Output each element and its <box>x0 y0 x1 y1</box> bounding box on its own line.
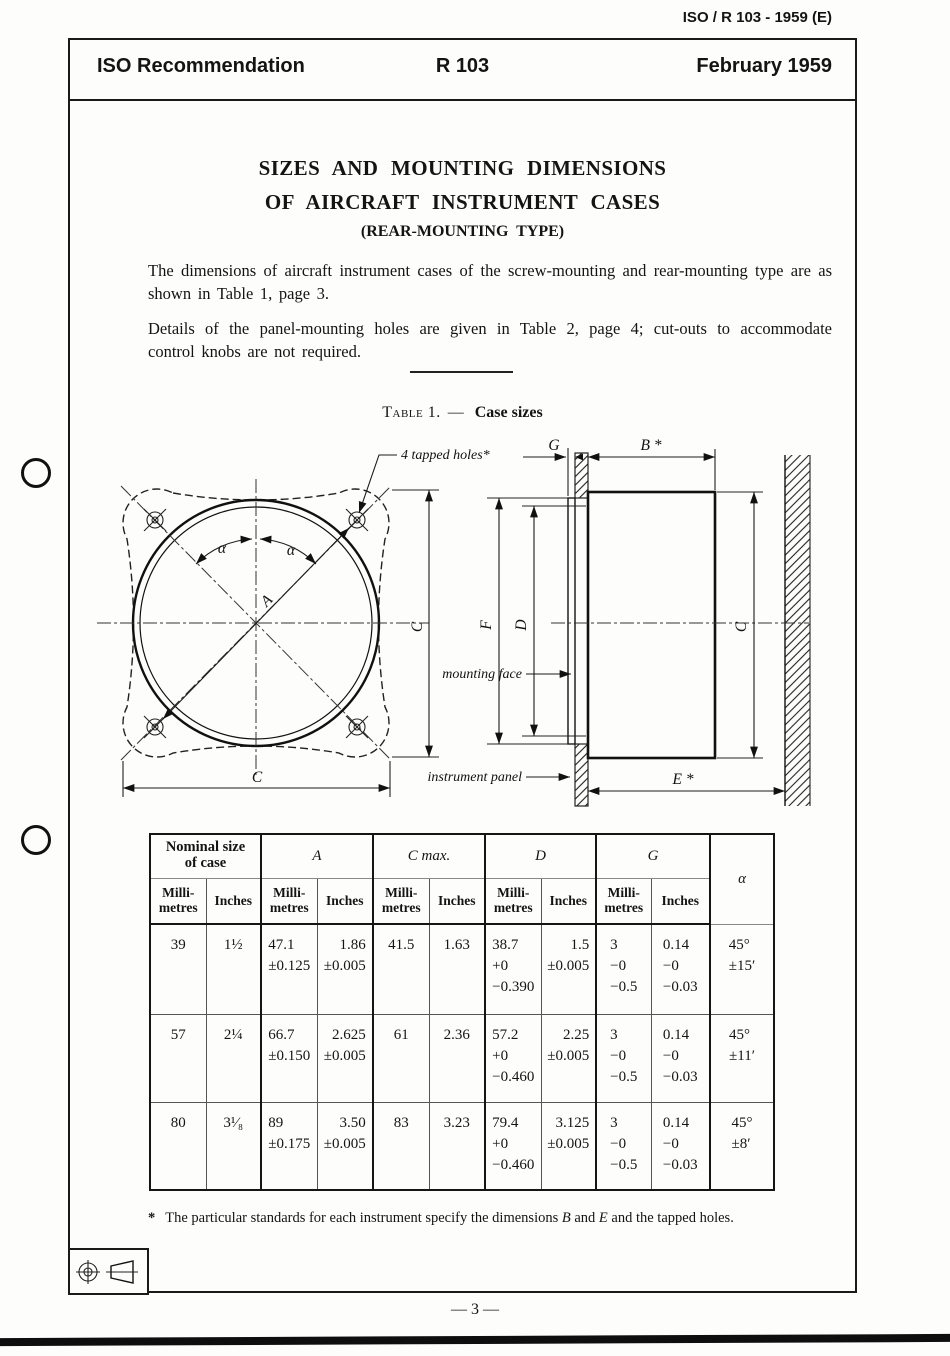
cell-g-in: 0.14 −0 −0.03 <box>651 924 710 1014</box>
mounting-face-label: mounting face <box>442 667 522 682</box>
dimension-label-a: A <box>257 591 277 611</box>
column-group-c-max: C max. <box>373 834 485 878</box>
cell-nominal-mm: 39 <box>150 924 206 1014</box>
column-group-a: A <box>261 834 373 878</box>
intro-text: The dimensions of aircraft instrument ca… <box>148 259 832 375</box>
cell-a-in: 3.50 ±0.005 <box>317 1102 373 1190</box>
case-dimensions-figure: A α α C C 4 tapped holes* <box>95 435 887 821</box>
column-group-nominal-size: Nominal size of case <box>150 834 261 878</box>
cell-c-mm: 83 <box>373 1102 429 1190</box>
case-sizes-table: Nominal size of case A C max. D G α Mill… <box>149 833 775 1191</box>
dimension-label-g: G <box>548 437 559 454</box>
side-view: G B * F D C E * <box>428 437 811 806</box>
cell-nominal-in: 3¹⁄₈ <box>206 1102 261 1190</box>
header-divider <box>68 99 857 101</box>
title-line-2: OF AIRCRAFT INSTRUMENT CASES <box>68 190 857 215</box>
cell-d-mm: 57.2 +0 −0.460 <box>485 1014 541 1102</box>
document-page: ISO / R 103 - 1959 (E) ISO Recommendatio… <box>0 0 950 1356</box>
dimension-label-c-horizontal: C <box>252 769 263 786</box>
dimension-label-c-side: C <box>733 621 750 632</box>
cell-g-mm: 3 −0 −0.5 <box>596 1014 651 1102</box>
cell-nominal-mm: 80 <box>150 1102 206 1190</box>
table-row: 57 2¼ 66.7 ±0.150 2.625 ±0.005 61 2.36 5… <box>150 1014 774 1102</box>
page-number: — 3 — <box>0 1301 950 1319</box>
cell-g-in: 0.14 −0 −0.03 <box>651 1014 710 1102</box>
instrument-panel-section-bottom <box>575 744 588 806</box>
cell-alpha: 45° ±15′ <box>710 924 774 1014</box>
instrument-panel-label: instrument panel <box>428 770 523 785</box>
cell-a-mm: 89 ±0.175 <box>261 1102 317 1190</box>
angle-label-alpha-right: α <box>287 542 296 559</box>
unit-header: Milli- metres <box>261 878 317 924</box>
cell-a-in: 2.625 ±0.005 <box>317 1014 373 1102</box>
unit-header: Milli- metres <box>485 878 541 924</box>
cell-d-mm: 38.7 +0 −0.390 <box>485 924 541 1014</box>
projection-symbol-box <box>68 1248 149 1295</box>
first-angle-projection-icon <box>70 1250 147 1293</box>
doc-reference: ISO / R 103 - 1959 (E) <box>0 9 832 26</box>
footnote: *The particular standards for each instr… <box>148 1210 818 1227</box>
scan-edge-band <box>0 1334 950 1346</box>
cell-g-mm: 3 −0 −0.5 <box>596 1102 651 1190</box>
cell-d-mm: 79.4 +0 −0.460 <box>485 1102 541 1190</box>
cell-g-in: 0.14 −0 −0.03 <box>651 1102 710 1190</box>
footnote-dim-b: B <box>562 1210 571 1226</box>
dimension-label-b: B * <box>640 437 661 454</box>
dimension-label-f: F <box>478 620 495 631</box>
tapped-holes-label: 4 tapped holes* <box>401 448 490 463</box>
unit-header: Inches <box>317 878 373 924</box>
footnote-text-3: and the tapped holes. <box>608 1210 734 1226</box>
cell-g-mm: 3 −0 −0.5 <box>596 924 651 1014</box>
unit-header: Milli- metres <box>596 878 651 924</box>
unit-header: Inches <box>541 878 596 924</box>
unit-header: Inches <box>651 878 710 924</box>
cell-alpha: 45° ±11′ <box>710 1014 774 1102</box>
intro-paragraph-2: Details of the panel-mounting holes are … <box>148 317 832 364</box>
cell-c-in: 1.63 <box>429 924 485 1014</box>
cell-a-in: 1.86 ±0.005 <box>317 924 373 1014</box>
unit-header: Inches <box>429 878 485 924</box>
cell-a-mm: 47.1 ±0.125 <box>261 924 317 1014</box>
table-caption-dash: — <box>448 404 464 421</box>
binder-hole-bottom <box>21 825 51 855</box>
tapped-hole-top-left <box>144 509 166 531</box>
column-group-alpha: α <box>710 834 774 924</box>
tapped-hole-bottom-right <box>346 716 368 738</box>
column-group-d: D <box>485 834 596 878</box>
unit-header: Milli- metres <box>150 878 206 924</box>
cell-c-mm: 41.5 <box>373 924 429 1014</box>
header-band: ISO Recommendation R 103 February 1959 <box>70 38 855 98</box>
table-caption: Table 1. — Case sizes <box>68 404 857 422</box>
tapped-holes-leader <box>359 455 397 513</box>
dimension-label-d: D <box>513 619 530 631</box>
cell-d-in: 1.5 ±0.005 <box>541 924 596 1014</box>
binder-hole-top <box>21 458 51 488</box>
table-caption-title: Case sizes <box>475 404 543 421</box>
case-body <box>588 492 715 758</box>
cell-c-in: 2.36 <box>429 1014 485 1102</box>
dimension-label-e: E * <box>671 771 693 788</box>
cell-d-in: 2.25 ±0.005 <box>541 1014 596 1102</box>
footnote-dim-e: E <box>599 1210 608 1226</box>
table-caption-label: Table 1. <box>382 404 441 421</box>
footnote-text-2: and <box>571 1210 599 1226</box>
footnote-marker: * <box>148 1210 155 1226</box>
table-row: 39 1½ 47.1 ±0.125 1.86 ±0.005 41.5 1.63 … <box>150 924 774 1014</box>
title-line-3: (REAR-MOUNTING TYPE) <box>68 223 857 241</box>
unit-header: Milli- metres <box>373 878 429 924</box>
header-date: February 1959 <box>696 55 832 78</box>
table-unit-header-row: Milli- metres Inches Milli- metres Inche… <box>150 878 774 924</box>
cell-nominal-in: 1½ <box>206 924 261 1014</box>
angle-label-alpha-left: α <box>218 540 227 557</box>
cell-a-mm: 66.7 ±0.150 <box>261 1014 317 1102</box>
cell-c-mm: 61 <box>373 1014 429 1102</box>
cell-nominal-in: 2¼ <box>206 1014 261 1102</box>
unit-header: Inches <box>206 878 261 924</box>
cell-c-in: 3.23 <box>429 1102 485 1190</box>
cell-nominal-mm: 57 <box>150 1014 206 1102</box>
table-group-header-row: Nominal size of case A C max. D G α <box>150 834 774 878</box>
case-flange <box>568 498 575 744</box>
table-row: 80 3¹⁄₈ 89 ±0.175 3.50 ±0.005 83 3.23 79… <box>150 1102 774 1190</box>
rear-wall-hatching <box>785 455 810 806</box>
dimension-label-c-vertical: C <box>409 621 426 632</box>
tapped-hole-top-right <box>346 509 368 531</box>
intro-paragraph-1: The dimensions of aircraft instrument ca… <box>148 259 832 306</box>
front-view: A α α C C 4 tapped holes* <box>97 448 490 797</box>
column-group-g: G <box>596 834 710 878</box>
document-title: SIZES AND MOUNTING DIMENSIONS OF AIRCRAF… <box>68 156 857 241</box>
cell-alpha: 45° ±8′ <box>710 1102 774 1190</box>
section-divider <box>410 371 513 373</box>
tapped-hole-bottom-left <box>144 716 166 738</box>
title-line-1: SIZES AND MOUNTING DIMENSIONS <box>68 156 857 181</box>
cell-d-in: 3.125 ±0.005 <box>541 1102 596 1190</box>
footnote-text-1: The particular standards for each instru… <box>165 1210 562 1226</box>
